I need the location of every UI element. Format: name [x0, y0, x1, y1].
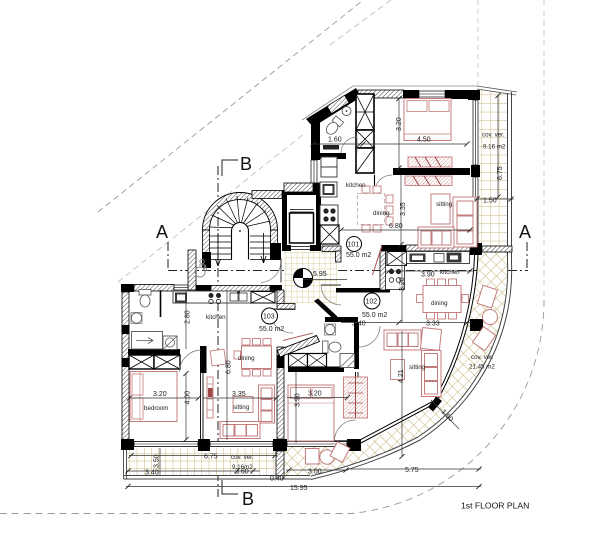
svg-text:55.0 m2: 55.0 m2 — [362, 312, 387, 319]
svg-text:3.35: 3.35 — [232, 391, 246, 398]
svg-text:6.80: 6.80 — [226, 360, 233, 374]
svg-text:3.50: 3.50 — [154, 454, 161, 468]
svg-text:5.75: 5.75 — [405, 467, 419, 474]
svg-text:6.80: 6.80 — [389, 223, 403, 230]
svg-text:1.50: 1.50 — [483, 198, 497, 205]
svg-text:103: 103 — [263, 314, 275, 321]
svg-text:3.20: 3.20 — [308, 391, 322, 398]
svg-text:6.75: 6.75 — [497, 166, 504, 180]
svg-text:A: A — [156, 222, 168, 242]
svg-text:0.40: 0.40 — [270, 476, 284, 483]
svg-text:3.20: 3.20 — [153, 391, 167, 398]
svg-text:sitting: sitting — [436, 201, 453, 208]
svg-text:1st FLOOR PLAN: 1st FLOOR PLAN — [461, 501, 529, 511]
svg-text:cov. ver.: cov. ver. — [482, 132, 505, 139]
svg-text:3.40: 3.40 — [352, 321, 366, 328]
svg-text:55.0 m2: 55.0 m2 — [259, 326, 284, 333]
svg-text:9.16 m2: 9.16 m2 — [483, 144, 506, 151]
svg-text:kitchen: kitchen — [346, 182, 366, 189]
svg-text:2.80: 2.80 — [185, 310, 192, 324]
svg-text:3.40: 3.40 — [145, 470, 159, 477]
svg-text:3.00: 3.00 — [308, 469, 322, 476]
svg-text:5.95: 5.95 — [313, 271, 327, 278]
svg-text:101: 101 — [348, 242, 360, 249]
svg-text:15.95: 15.95 — [290, 485, 308, 492]
svg-text:4.21: 4.21 — [398, 369, 405, 383]
svg-text:dining: dining — [373, 210, 390, 217]
svg-text:3.20: 3.20 — [399, 277, 406, 291]
svg-text:4.50: 4.50 — [417, 137, 431, 144]
svg-text:4.00: 4.00 — [185, 391, 192, 405]
svg-text:kitchen: kitchen — [206, 314, 226, 321]
svg-text:3.33: 3.33 — [426, 321, 440, 328]
svg-text:3.60: 3.60 — [235, 469, 249, 476]
svg-text:sitting: sitting — [233, 404, 250, 411]
svg-text:21.45 m2: 21.45 m2 — [469, 364, 495, 371]
svg-text:1.60: 1.60 — [328, 137, 342, 144]
svg-text:dining: dining — [238, 355, 255, 362]
svg-text:3.90: 3.90 — [295, 393, 302, 407]
svg-text:kitchen: kitchen — [440, 269, 460, 276]
svg-text:B: B — [240, 154, 252, 174]
svg-text:cov. ver.: cov. ver. — [471, 354, 494, 361]
svg-text:3.90: 3.90 — [421, 272, 435, 279]
svg-text:A: A — [519, 222, 531, 242]
svg-text:dining: dining — [431, 300, 448, 307]
svg-text:102: 102 — [366, 299, 378, 306]
svg-text:B: B — [242, 489, 254, 509]
svg-text:3.20: 3.20 — [396, 117, 403, 131]
svg-text:cov. ver.: cov. ver. — [231, 454, 254, 461]
svg-text:6.75: 6.75 — [204, 454, 218, 461]
svg-text:bedroom: bedroom — [144, 405, 168, 412]
svg-text:55.0 m2: 55.0 m2 — [346, 252, 371, 259]
svg-text:sitting: sitting — [409, 364, 426, 371]
svg-text:3.35: 3.35 — [400, 202, 407, 216]
